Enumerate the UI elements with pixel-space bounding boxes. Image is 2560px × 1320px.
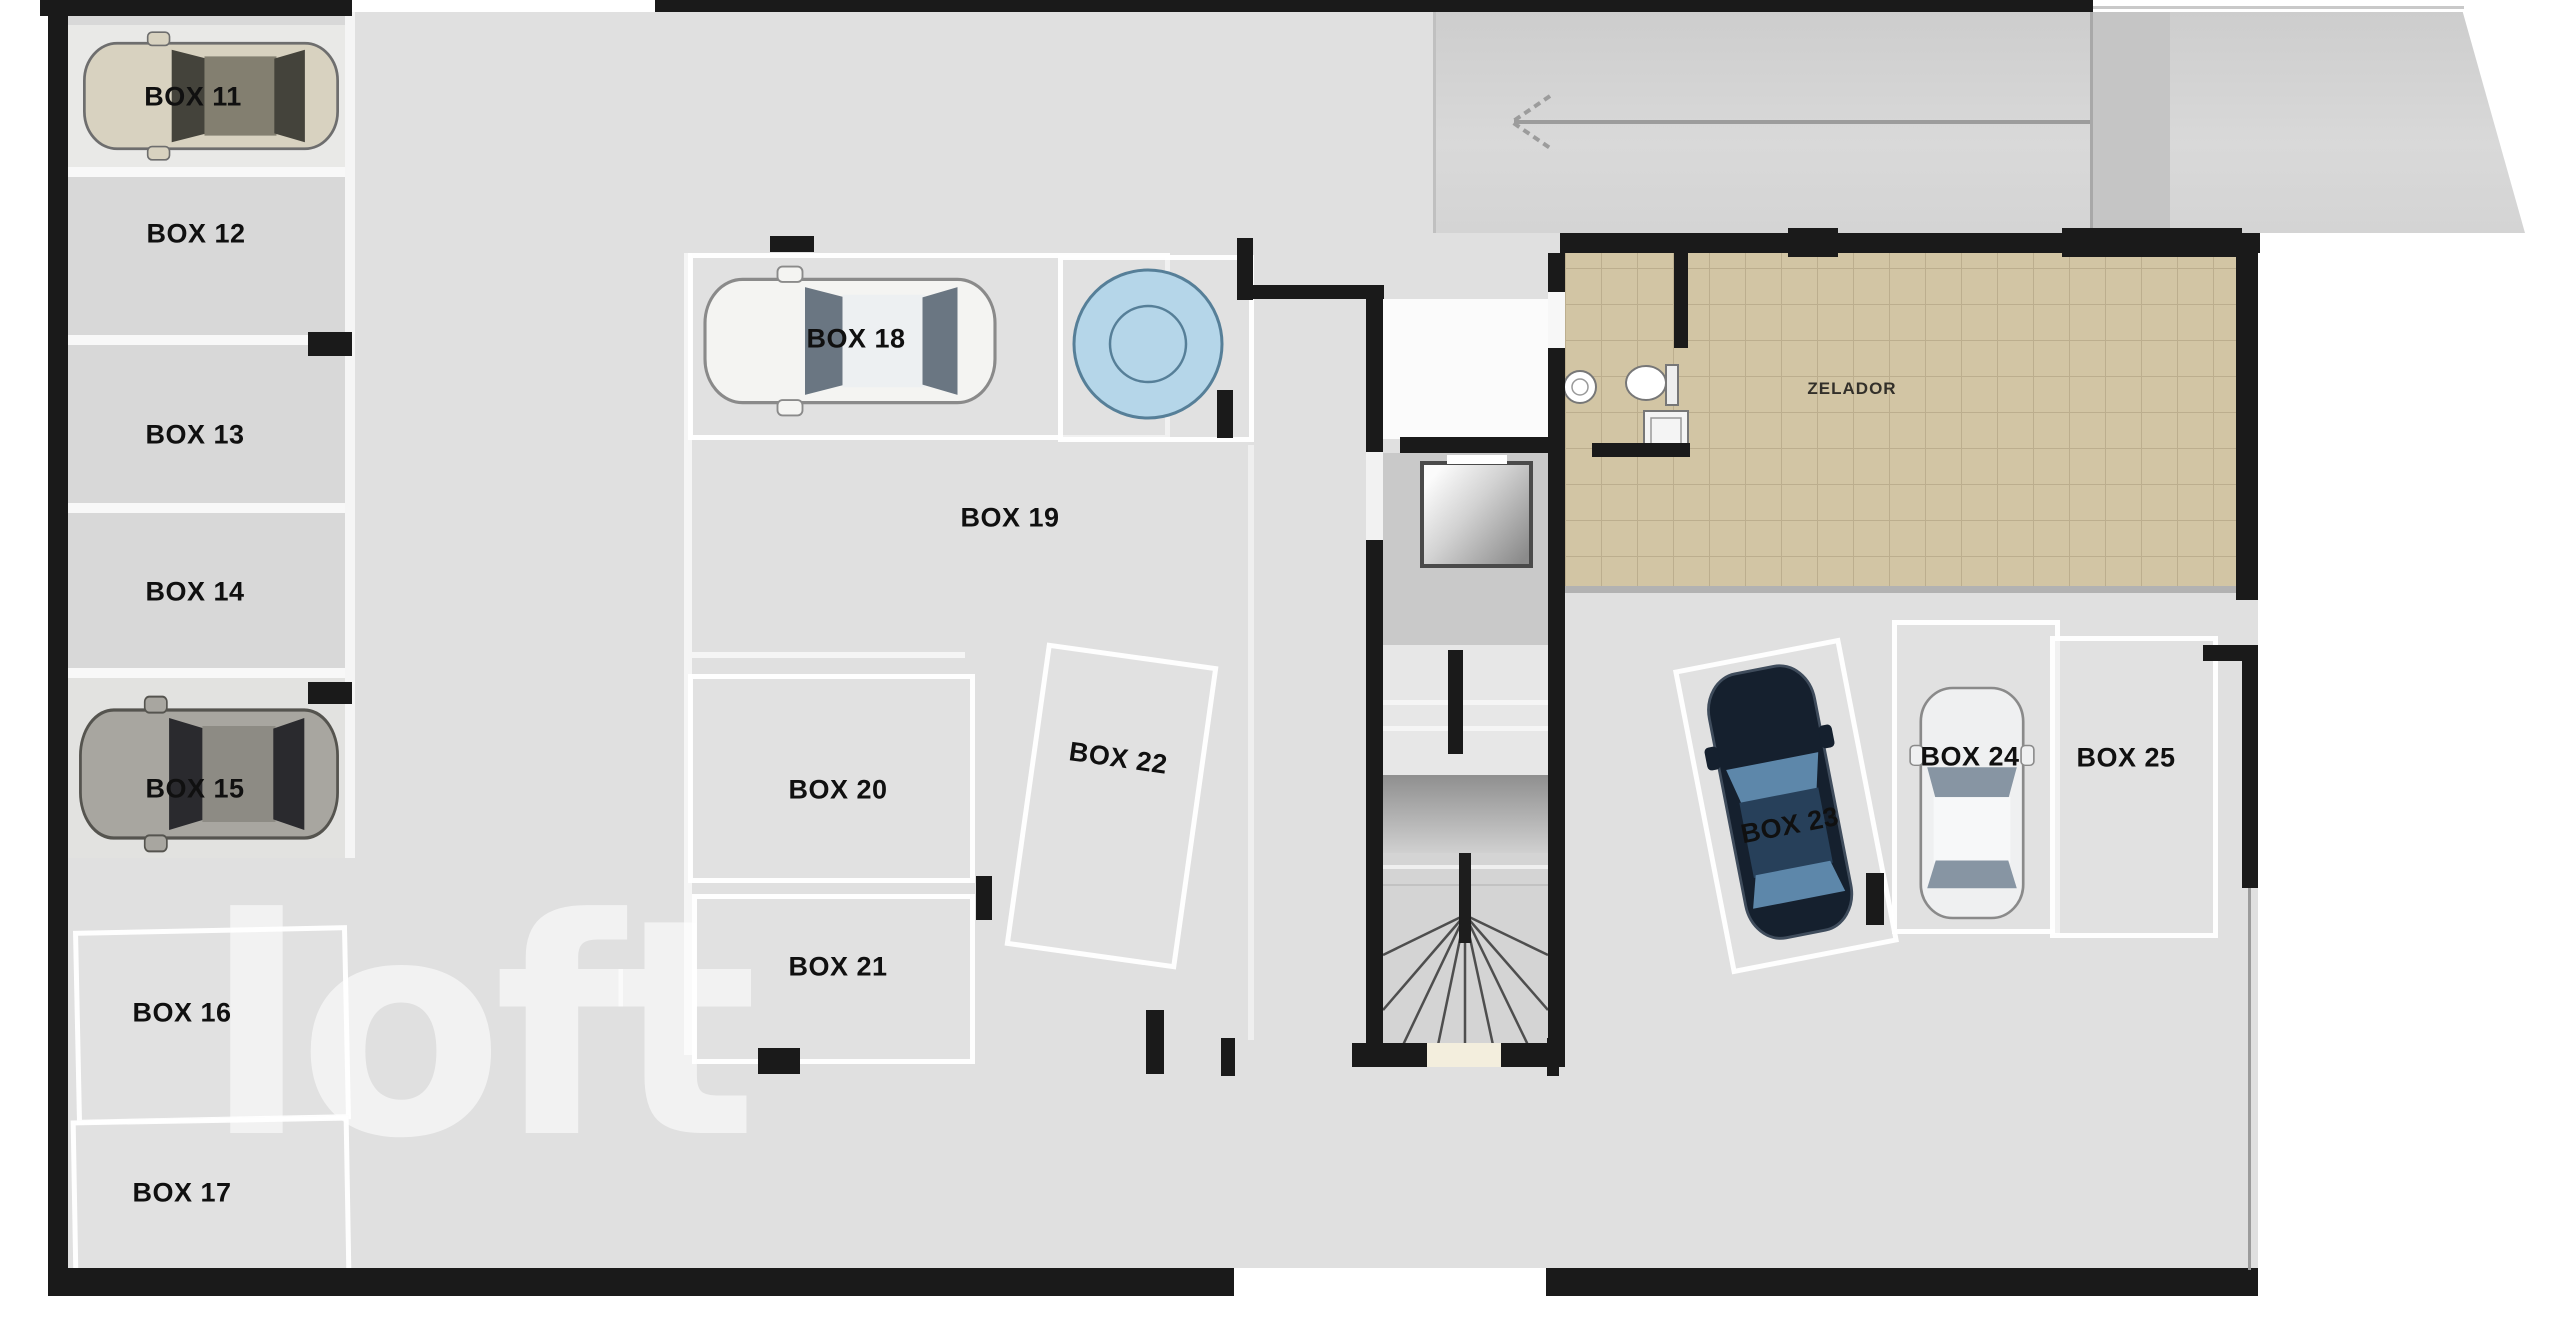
box-13-label: BOX 13: [145, 420, 244, 451]
wall-zelador-top-stub: [2062, 228, 2242, 257]
core-hall: [1383, 645, 1548, 775]
box-22-label: BOX 22: [1067, 736, 1169, 780]
corridor-edge-line: [1248, 445, 1254, 1040]
box-17-label: BOX 17: [132, 1178, 231, 1209]
garage-floor-plan: BOX 22: [0, 0, 2560, 1320]
elevator-door-slot: [1447, 455, 1507, 464]
zelador-floor-edge: [1565, 586, 2236, 593]
pillar-stub: [308, 332, 352, 356]
core-hall-line: [1383, 726, 1548, 731]
wall-core-right: [1548, 253, 1565, 1065]
wall-right-thin-line: [2248, 888, 2251, 1270]
stall-separator: [68, 167, 345, 177]
box-18-label: BOX 18: [806, 324, 905, 355]
elevator-lobby: [1383, 299, 1548, 439]
turntable-icon: [1063, 260, 1239, 427]
box-25-stall: [2050, 636, 2218, 938]
wall-right-stub-h: [2203, 645, 2258, 661]
box-12-label: BOX 12: [146, 219, 245, 250]
sink-icon: [1564, 371, 1596, 403]
pillar-stub: [1547, 1038, 1559, 1076]
wall-bottom-right: [1546, 1268, 2258, 1296]
wall-right-mid: [2242, 660, 2258, 888]
box-16-label: BOX 16: [132, 998, 231, 1029]
box-11-label: BOX 11: [144, 82, 242, 113]
stall-separator: [68, 503, 345, 513]
toilet-icon: [1626, 366, 1666, 400]
wall-core-divider: [1400, 437, 1548, 453]
staircase: [1383, 775, 1548, 1045]
pillar-stub: [1146, 1010, 1164, 1074]
box-20-top-line: [688, 652, 965, 658]
ramp-top-edge-line: [2090, 6, 2464, 9]
elevator-car: [1420, 461, 1533, 568]
wall-bottom-left: [48, 1268, 1234, 1296]
wall-bathroom-inner-v: [1674, 253, 1688, 348]
wall-right-zelador: [2236, 233, 2258, 600]
pillar-stub: [770, 236, 814, 252]
wall-core-corner-h: [1247, 285, 1384, 299]
ramp-divider-line-inner: [1433, 12, 1436, 233]
box-21-label: BOX 21: [788, 952, 887, 983]
box-14-label: BOX 14: [145, 577, 244, 608]
wall-top-middle: [655, 0, 2093, 12]
wall-core-left: [1366, 285, 1383, 1065]
wall-bathroom-inner-h: [1592, 443, 1690, 457]
pillar-stub: [1221, 1038, 1235, 1076]
ramp-outer-band: [2092, 12, 2170, 233]
wall-top-left: [40, 0, 352, 16]
box-25-label: BOX 25: [2076, 743, 2175, 774]
core-hall-wall-stub: [1448, 650, 1463, 754]
box-19-label: BOX 19: [960, 503, 1059, 534]
pillar-stub: [758, 1048, 800, 1074]
pillar-stub: [308, 682, 352, 704]
pillar-stub: [1866, 873, 1884, 925]
stall-separator: [68, 668, 345, 678]
zelador-room-label: ZELADOR: [1807, 379, 1896, 399]
core-bottom-door-gap: [1427, 1043, 1501, 1067]
ramp-direction-arrow-icon: [1462, 90, 2102, 154]
box-20-label: BOX 20: [788, 775, 887, 806]
core-left-door-gap: [1366, 452, 1383, 540]
pillar-stub: [1217, 390, 1233, 438]
column-edge-line: [345, 12, 355, 858]
wall-zelador-top-stub: [1788, 228, 1838, 257]
core-hall-line: [1383, 700, 1548, 705]
box-15-label: BOX 15: [145, 774, 244, 805]
wall-left: [48, 12, 68, 1268]
car-box24: [1908, 684, 2036, 922]
stall-separator: [68, 335, 345, 345]
core-right-door-gap: [1548, 292, 1565, 348]
box-24-label: BOX 24: [1920, 742, 2019, 773]
pillar-stub: [976, 876, 992, 920]
